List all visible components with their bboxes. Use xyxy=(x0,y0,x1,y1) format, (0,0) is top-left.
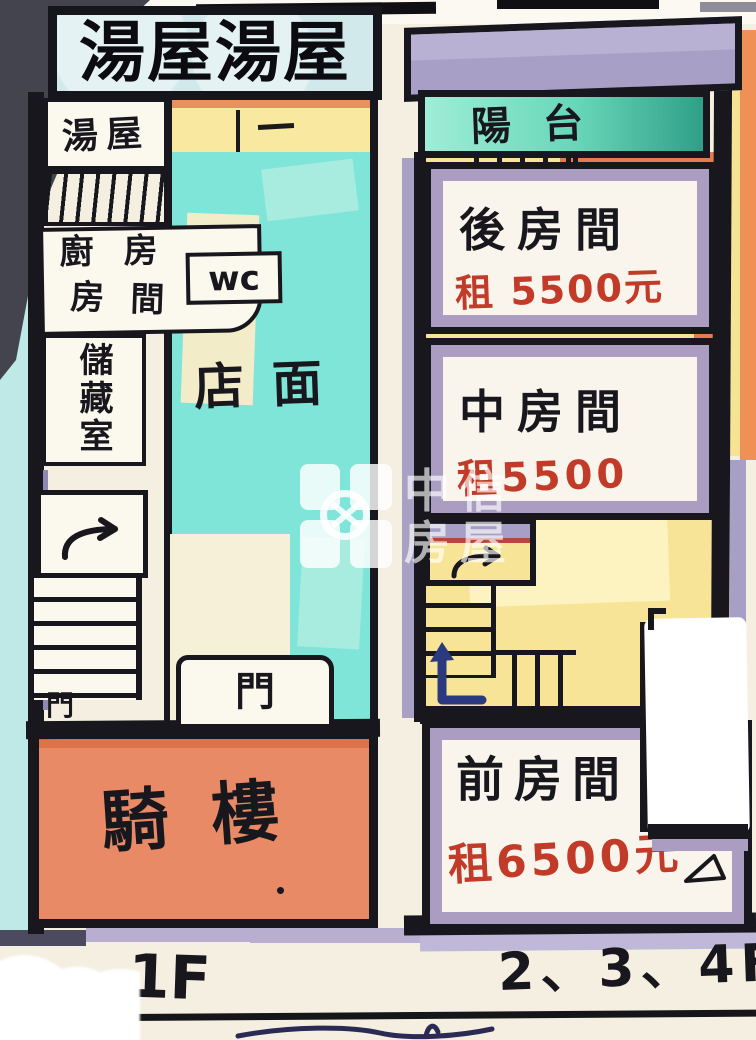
room-back-name: 後房間 xyxy=(459,207,633,253)
room-middle: 中房間 租5500 xyxy=(424,338,716,520)
white-blob xyxy=(0,950,140,1040)
top-band-highlight xyxy=(411,23,735,60)
stairs-hatch xyxy=(44,170,168,226)
landing-purple-trim xyxy=(430,524,530,538)
balcony-label: 陽台 xyxy=(470,102,615,147)
left-plan-shadow xyxy=(86,928,262,942)
whiteout-patch xyxy=(644,617,750,835)
storefront-room: 店面 xyxy=(164,90,378,736)
partial-writing xyxy=(230,1020,510,1040)
triangle-door-icon xyxy=(678,848,728,886)
bedroom-label: 房間 xyxy=(70,280,191,318)
notch-trim-bottom xyxy=(652,839,748,851)
room-middle-name: 中房間 xyxy=(459,389,633,435)
curved-arrow-icon xyxy=(57,513,135,563)
kitchen-label: 廚房 xyxy=(59,233,188,269)
storage-label: 儲藏室 xyxy=(76,342,110,456)
arcade-label: 騎樓 xyxy=(99,775,323,858)
floorplan-image: 店面 門 湯屋 廚房 房間 wc 儲藏室 門 騎樓 1F 陽台 xyxy=(0,0,756,1040)
room-back-rent: 租 5500元 xyxy=(454,267,664,312)
landing-arrow-box xyxy=(424,518,536,586)
up-arrow-icon xyxy=(428,638,494,710)
store-door-box: 門 xyxy=(176,655,334,729)
soup-room-box: 湯屋 xyxy=(44,98,168,170)
door-label: 門 xyxy=(235,669,275,715)
storage-room-box: 儲藏室 xyxy=(42,334,146,466)
wc-label: wc xyxy=(208,259,260,300)
balcony: 陽台 xyxy=(418,90,710,158)
patch-hook xyxy=(648,608,654,630)
notch-wall-bottom xyxy=(648,824,748,839)
floor-label-234f: 2、3、4F xyxy=(497,937,756,999)
signboard: 湯屋湯屋 xyxy=(48,6,382,100)
storefront-yellow-band xyxy=(172,108,370,152)
mid-shadow xyxy=(250,928,420,943)
yellow-band-divider xyxy=(236,110,240,152)
storefront-label: 店面 xyxy=(193,357,351,412)
room-middle-rent: 租5500 xyxy=(456,454,629,500)
floor-patch xyxy=(297,536,365,649)
arcade-label-dot xyxy=(277,887,284,894)
door-label-stairs: 門 xyxy=(46,692,74,720)
stairs-horizontal xyxy=(34,578,142,700)
arcade-area: 騎樓 xyxy=(30,730,378,928)
wc-box: wc xyxy=(186,251,283,305)
curved-arrow-icon xyxy=(448,544,516,580)
top-bar xyxy=(497,0,659,9)
signboard-title: 湯屋湯屋 xyxy=(79,14,351,91)
top-bar-gray xyxy=(700,2,756,12)
room-back: 後房間 租 5500元 xyxy=(424,162,716,334)
room-front-rent: 租6500元 xyxy=(447,832,683,888)
floor-patch xyxy=(261,159,359,222)
stairs-landing-box xyxy=(36,490,148,578)
landing-red-line xyxy=(430,538,530,543)
soup-room-label: 湯屋 xyxy=(61,116,151,157)
arcade-inner-trim xyxy=(39,739,369,748)
room-front-name: 前房間 xyxy=(456,756,630,804)
outside-orange-strip xyxy=(740,30,756,460)
